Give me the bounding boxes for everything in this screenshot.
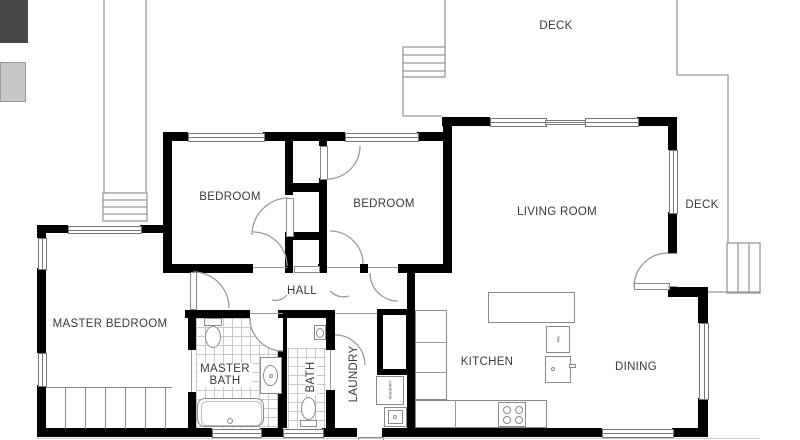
master-bedroom-door-arc <box>193 272 229 308</box>
walkway-edge <box>104 0 146 193</box>
room-label-deck-top: DECK <box>539 20 572 32</box>
room-label-laundry: LAUNDRY <box>348 346 360 403</box>
master-bath-line2: BATH <box>200 375 250 387</box>
bedroom1-closet-door-arc <box>252 198 289 235</box>
deck-right-stairs <box>727 243 760 293</box>
bedroom1-entry-door-arc <box>253 232 287 266</box>
deck-top-edge <box>403 77 442 116</box>
room-label-dining: DINING <box>615 361 657 373</box>
room-label-master-bath: MASTER BATH <box>198 363 252 387</box>
stair-treads <box>738 243 749 293</box>
bedroom2-closet-door-arc <box>327 146 360 179</box>
thin-line-overlay <box>0 0 800 440</box>
stair-treads <box>403 55 445 71</box>
room-label-deck-right: DECK <box>685 199 718 211</box>
label-leader <box>330 291 349 297</box>
room-label-living: LIVING ROOM <box>517 206 597 218</box>
room-label-kitchen: KITCHEN <box>461 356 514 368</box>
room-label-bedroom1: BEDROOM <box>199 191 261 203</box>
room-label-bedroom2: BEDROOM <box>353 198 415 210</box>
kitchen-door-arc <box>370 273 398 301</box>
master-bath-line1: MASTER <box>200 363 250 375</box>
room-label-bath: BATH <box>305 359 317 394</box>
deck-top-stairs <box>403 47 445 77</box>
room-label-master-bedroom: MASTER BEDROOM <box>53 318 168 330</box>
bedroom2-entry-door-arc <box>330 231 363 264</box>
floor-plan: WSH/DRY RG <box>0 0 800 440</box>
label-leader <box>272 295 287 300</box>
room-label-hall: HALL <box>287 285 317 297</box>
stair-treads <box>103 200 147 214</box>
deck-door-arc <box>634 253 668 287</box>
